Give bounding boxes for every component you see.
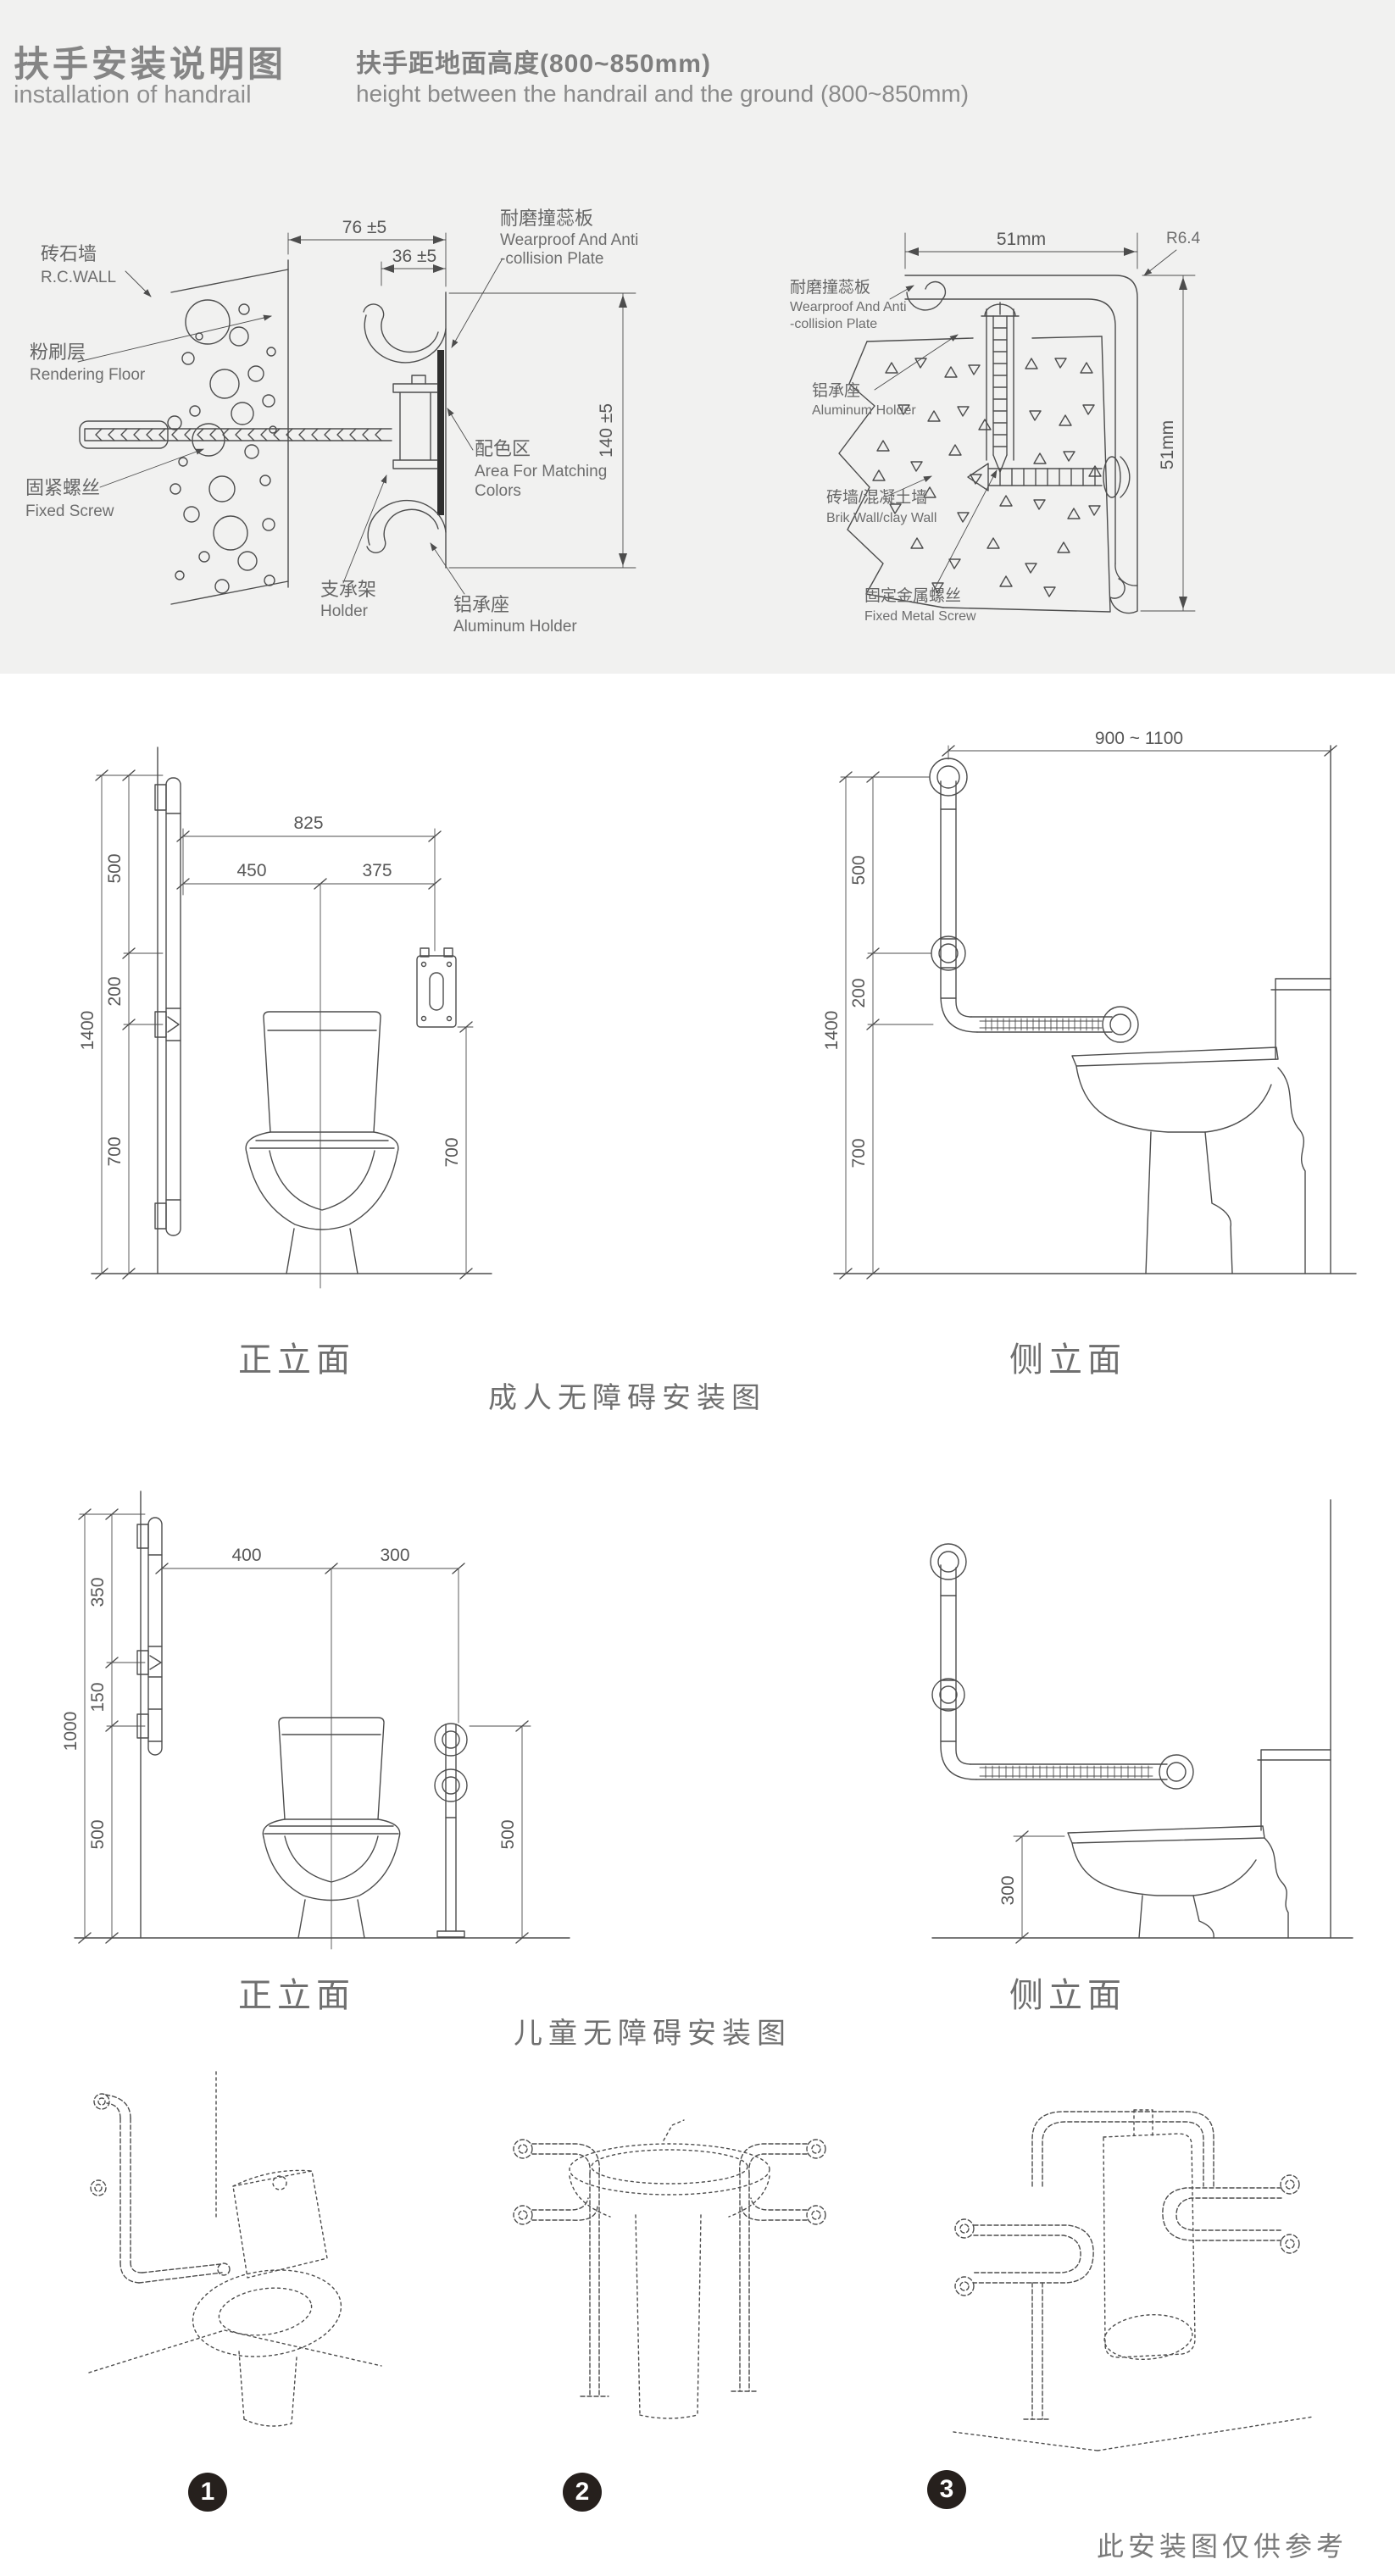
- label-plate-en2: -collision Plate: [790, 317, 877, 331]
- page-title-cn: 扶手安装说明图: [14, 36, 286, 87]
- page-subtitle-cn: 扶手距地面高度(800~850mm): [356, 42, 711, 80]
- label-alu-en: Aluminum Holder: [812, 403, 916, 418]
- reference-note: 此安装图仅供参考: [958, 2525, 1348, 2564]
- dim-76: 76 ±5: [342, 218, 386, 237]
- label-plate-cn: 耐磨撞蕊板: [500, 208, 593, 229]
- brick-wall: [839, 336, 1110, 612]
- label-screw-cn: 固紧螺丝: [25, 477, 100, 498]
- child-front-label: 正立面: [195, 1968, 398, 2017]
- wall-and-grab-bar: [155, 747, 181, 1274]
- label-wall-en: R.C.WALL: [41, 269, 116, 286]
- dim-1400: 1400: [78, 1011, 97, 1051]
- dim-500-right: 500: [498, 1819, 518, 1849]
- child-front-view: 1000 350 150 500 400 300 500: [51, 1487, 593, 1970]
- l-shaped-grab-bar: [930, 758, 1138, 1042]
- dim-1000: 1000: [61, 1712, 81, 1752]
- dim-900-1100: 900 ~ 1100: [1095, 729, 1183, 748]
- label-plate-cn: 耐磨撞蕊板: [790, 278, 870, 297]
- dim-150: 150: [88, 1682, 108, 1712]
- dim-500: 500: [105, 853, 125, 883]
- sketch-sink-grab-bars: [470, 2059, 869, 2466]
- badge-2: 2: [563, 2473, 602, 2512]
- label-alu-cn: 铝承座: [453, 594, 509, 615]
- handrail-profile: [364, 292, 446, 568]
- dim-700: 700: [849, 1138, 869, 1168]
- dim-700-right: 700: [442, 1137, 462, 1167]
- dimensions: 1000 350 150 500 400 300 500: [61, 1509, 570, 1943]
- label-wall-en: Brik Wall/clay Wall: [826, 511, 936, 525]
- label-plate-en1: Wearproof And Anti: [790, 300, 907, 314]
- label-area-en1: Area For Matching: [475, 463, 607, 480]
- label-wall-cn: 砖墙/混凝土墙: [826, 488, 927, 507]
- dim-200: 200: [849, 978, 869, 1008]
- sketch-urinal-grab-bars: [907, 2059, 1348, 2466]
- dim-36: 36 ±5: [392, 247, 436, 266]
- dim-700-left: 700: [105, 1136, 125, 1166]
- label-alu-cn: 铝承座: [812, 381, 860, 400]
- toilet-front: [263, 1568, 399, 1949]
- profile-left-diagram: 76 ±5 36 ±5 140 ±5 砖石墙 R.C.WALL 粉刷层 Rend…: [25, 208, 695, 640]
- dim-375: 375: [362, 861, 392, 880]
- label-holder-en: Holder: [320, 602, 369, 620]
- dim-51-top: 51mm: [997, 230, 1046, 249]
- wall-and-grab-bar: [137, 1491, 162, 1938]
- dim-1400: 1400: [822, 1011, 842, 1051]
- page-subtitle-en: height between the handrail and the grou…: [356, 80, 969, 108]
- child-side-view: 300: [814, 1487, 1395, 1970]
- dim-350: 350: [88, 1577, 108, 1607]
- dim-140: 140 ±5: [597, 403, 616, 458]
- toilet-side: [1068, 1500, 1331, 1938]
- dim-450: 450: [236, 861, 266, 880]
- leader-lines: [875, 286, 997, 593]
- dimensions: 1400 500 200 700 825 450 375 700: [78, 770, 492, 1279]
- dimensions: 76 ±5 36 ±5 140 ±5: [288, 218, 636, 568]
- adult-front-view: 1400 500 200 700 825 450 375 700: [68, 729, 509, 1322]
- left-bar-sketch: [514, 2140, 609, 2396]
- label-alu-en: Aluminum Holder: [453, 618, 577, 636]
- right-bar-sketch: [731, 2140, 825, 2391]
- dim-500-left: 500: [88, 1819, 108, 1849]
- l-shaped-grab-bar: [931, 1544, 1193, 1789]
- label-wall-cn: 砖石墙: [41, 243, 97, 264]
- child-side-label: 侧立面: [966, 1968, 1170, 2017]
- wall-section: [168, 260, 288, 604]
- dim-300: 300: [998, 1875, 1018, 1905]
- dim-radius: R6.4: [1166, 230, 1201, 247]
- label-area-en2: Colors: [475, 482, 521, 500]
- sketch-toilet-grab-bar: [25, 2059, 424, 2466]
- fixing-screw: [80, 421, 392, 448]
- profile-right-diagram: 51mm R6.4 51mm 耐磨撞蕊板 Wearproof And Anti …: [746, 208, 1390, 631]
- toilet-front: [246, 884, 398, 1288]
- badge-1: 1: [188, 2473, 227, 2512]
- urinal-sketch: [953, 2110, 1314, 2451]
- label-plate-en1: Wearproof And Anti: [500, 231, 638, 249]
- dim-51-right: 51mm: [1158, 420, 1177, 469]
- label-render-cn: 粉刷层: [30, 341, 86, 363]
- label-screw-cn: 固定金属螺丝: [864, 586, 961, 605]
- dim-500: 500: [849, 855, 869, 885]
- toilet-sketch: [89, 2072, 381, 2426]
- label-plate-en2: -collision Plate: [500, 250, 604, 268]
- label-screw-en: Fixed Metal Screw: [864, 609, 976, 624]
- corner-profile: [905, 275, 1137, 613]
- dim-300: 300: [380, 1546, 409, 1565]
- label-area-cn: 配色区: [475, 438, 531, 459]
- side-bars-sketch: [955, 2175, 1299, 2419]
- wall-bracket: [417, 829, 456, 1027]
- adult-side-view: 900 ~ 1100 1400 500 200 700: [814, 729, 1395, 1322]
- dim-825: 825: [293, 813, 323, 833]
- page-title-en: installation of handrail: [14, 81, 252, 109]
- dimensions: 300: [932, 1831, 1353, 1943]
- dim-200: 200: [105, 976, 125, 1006]
- top-bar-sketch: [1032, 2112, 1214, 2186]
- label-screw-en: Fixed Screw: [25, 502, 114, 520]
- label-holder-cn: 支承架: [320, 579, 376, 600]
- handrail-installation-sheet: { "colors": {"band": "#f1f1f0", "line": …: [0, 0, 1395, 2576]
- floor-standing-bar: [435, 1724, 467, 1937]
- grab-bar-sketch: [91, 2094, 230, 2283]
- badge-3: 3: [927, 2470, 966, 2509]
- dimensions: 51mm R6.4 51mm: [905, 230, 1201, 611]
- child-section-title: 儿童无障碍安装图: [390, 2010, 915, 2051]
- adult-section-title: 成人无障碍安装图: [364, 1374, 890, 1416]
- adult-side-label: 侧立面: [966, 1332, 1170, 1381]
- label-render-en: Rendering Floor: [30, 366, 146, 384]
- dim-400: 400: [231, 1546, 261, 1565]
